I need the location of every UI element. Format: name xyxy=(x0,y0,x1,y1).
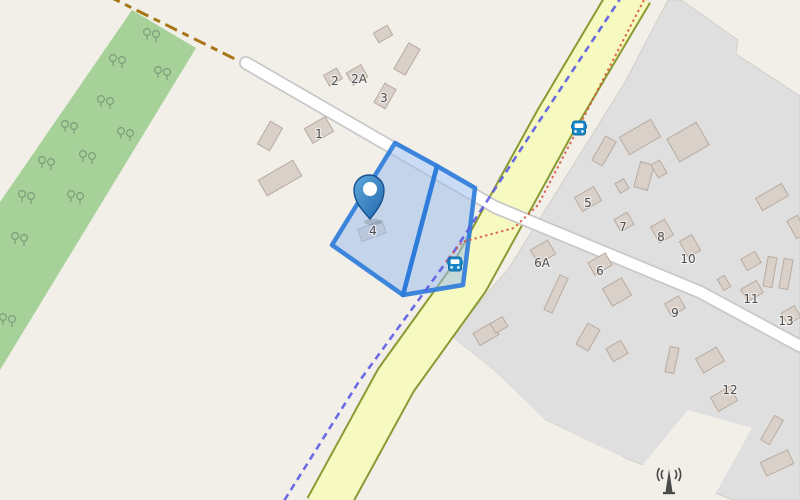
pin-hole xyxy=(363,182,377,196)
house-number-label: 4 xyxy=(369,224,377,238)
bus-windshield xyxy=(575,123,584,128)
pin-shadow xyxy=(364,219,382,225)
bus-windshield xyxy=(451,259,460,264)
bus-stop-icon xyxy=(571,121,587,135)
bus-stop-icon xyxy=(447,257,463,271)
bus-light xyxy=(450,266,453,269)
bus-light xyxy=(581,130,584,133)
bus-light xyxy=(457,266,460,269)
house-number-label: 5 xyxy=(584,196,592,210)
house-number-label: 13 xyxy=(778,314,793,328)
bus-light xyxy=(574,130,577,133)
house-number-label: 12 xyxy=(722,383,737,397)
house-number-label: 8 xyxy=(657,230,665,244)
bus-mirror xyxy=(571,125,573,129)
bus-mirror xyxy=(447,261,449,265)
bus-mirror xyxy=(461,261,463,265)
house-number-label: 6A xyxy=(534,256,551,270)
house-number-label: 6 xyxy=(596,264,604,278)
antenna-base xyxy=(663,492,675,494)
map-canvas[interactable]: 22A314578106A61191312 xyxy=(0,0,800,500)
house-number-label: 2 xyxy=(331,74,339,88)
house-number-label: 9 xyxy=(671,306,679,320)
house-number-label: 3 xyxy=(380,91,388,105)
bus-mirror xyxy=(585,125,587,129)
house-number-label: 10 xyxy=(680,252,695,266)
house-number-label: 7 xyxy=(619,220,627,234)
map-render-surface[interactable]: 22A314578106A61191312 xyxy=(0,0,800,500)
house-number-label: 1 xyxy=(315,127,323,141)
house-number-label: 11 xyxy=(743,292,758,306)
house-number-label: 2A xyxy=(351,72,368,86)
